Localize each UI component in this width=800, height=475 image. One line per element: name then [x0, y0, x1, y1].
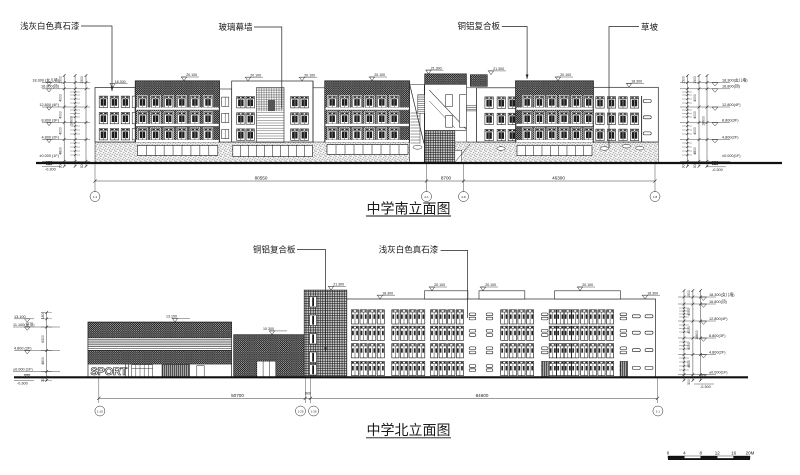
svg-text:4000: 4000: [687, 342, 691, 350]
svg-text:1-10: 1-10: [97, 410, 103, 414]
svg-text:8.800(3F): 8.800(3F): [709, 334, 726, 338]
svg-text:浅灰白色真石漆: 浅灰白色真石漆: [20, 21, 80, 31]
svg-text:18600: 18600: [695, 330, 699, 340]
svg-text:12: 12: [715, 451, 721, 456]
svg-text:草坡: 草坡: [641, 22, 659, 32]
svg-text:18.300: 18.300: [115, 80, 126, 84]
svg-text:4800: 4800: [687, 360, 691, 368]
svg-text:18.300: 18.300: [382, 291, 393, 295]
svg-text:玻璃幕墙: 玻璃幕墙: [219, 22, 254, 32]
svg-text:300: 300: [693, 162, 697, 168]
svg-text:1500: 1500: [682, 76, 686, 84]
svg-text:4.800(2F): 4.800(2F): [722, 135, 739, 139]
svg-text:4000: 4000: [693, 111, 697, 119]
svg-text:1500: 1500: [59, 76, 63, 84]
svg-text:13.100: 13.100: [14, 315, 26, 319]
svg-text:-0.300: -0.300: [45, 168, 56, 172]
svg-text:1500: 1500: [80, 76, 84, 84]
svg-text:6300: 6300: [41, 335, 45, 343]
svg-text:18.300(女儿墙): 18.300(女儿墙): [709, 292, 735, 297]
svg-text:12.800(4F): 12.800(4F): [709, 317, 728, 321]
svg-text:300: 300: [687, 379, 691, 385]
svg-text:21.300: 21.300: [431, 66, 442, 70]
svg-text:16.800(顶): 16.800(顶): [41, 84, 60, 89]
svg-text:1-26: 1-26: [311, 410, 317, 414]
svg-text:-0.300: -0.300: [712, 168, 723, 172]
svg-text:300: 300: [41, 376, 45, 382]
svg-text:浅灰白色真石漆: 浅灰白色真石漆: [379, 245, 439, 255]
svg-text:2-8: 2-8: [461, 195, 466, 199]
svg-text:4.800 (2F): 4.800 (2F): [14, 347, 32, 351]
svg-text:4000: 4000: [693, 94, 697, 102]
svg-text:1-25: 1-25: [297, 410, 303, 414]
svg-text:1800: 1800: [41, 312, 45, 320]
svg-text:21.300: 21.300: [333, 283, 344, 287]
svg-text:4000: 4000: [687, 326, 691, 334]
svg-text:±0.000(1F): ±0.000(1F): [722, 154, 741, 158]
svg-text:800: 800: [305, 392, 311, 396]
svg-text:8.800 (3F): 8.800 (3F): [41, 118, 59, 122]
svg-text:-0.300: -0.300: [17, 381, 28, 385]
svg-text:20.100: 20.100: [582, 283, 593, 287]
svg-text:8700: 8700: [441, 176, 452, 181]
svg-text:20.100: 20.100: [304, 73, 315, 77]
svg-text:中学北立面图: 中学北立面图: [367, 422, 451, 438]
svg-text:300: 300: [682, 162, 686, 168]
svg-text:铜铝复合板: 铜铝复合板: [253, 245, 296, 255]
svg-text:18.300: 18.300: [631, 80, 642, 84]
svg-text:1500: 1500: [693, 76, 697, 84]
svg-text:20.100: 20.100: [560, 73, 571, 77]
svg-text:18.300(女儿墙): 18.300(女儿墙): [722, 77, 748, 82]
svg-text:1500: 1500: [687, 290, 691, 298]
svg-text:4000: 4000: [687, 308, 691, 316]
svg-text:20.100: 20.100: [485, 283, 496, 287]
svg-text:18600: 18600: [70, 116, 74, 126]
svg-text:±0.000 (1F): ±0.000 (1F): [39, 154, 59, 158]
svg-text:16.800(顶): 16.800(顶): [722, 84, 741, 89]
svg-text:±0.000(1F): ±0.000(1F): [709, 370, 728, 374]
svg-text:300: 300: [59, 162, 63, 168]
svg-text:18600: 18600: [702, 116, 706, 126]
svg-text:4000: 4000: [59, 94, 63, 102]
svg-text:4800: 4800: [59, 147, 63, 155]
svg-text:8.800(3F): 8.800(3F): [722, 118, 739, 122]
svg-text:16: 16: [731, 451, 737, 456]
svg-text:铜铝复合板: 铜铝复合板: [458, 21, 501, 31]
svg-text:20.100: 20.100: [250, 73, 261, 77]
svg-text:20.100: 20.100: [186, 73, 197, 77]
svg-text:80550: 80550: [255, 176, 268, 181]
svg-text:20.100: 20.100: [374, 73, 385, 77]
svg-text:2-1: 2-1: [424, 195, 429, 199]
svg-text:1-1: 1-1: [93, 195, 98, 199]
svg-text:4000: 4000: [693, 127, 697, 135]
svg-text:4000: 4000: [59, 111, 63, 119]
svg-text:300: 300: [80, 162, 84, 168]
svg-text:1-8: 1-8: [653, 195, 658, 199]
svg-text:4.800 (2F): 4.800 (2F): [41, 135, 59, 139]
svg-text:13.100: 13.100: [166, 315, 177, 319]
svg-text:12.800(4F): 12.800(4F): [722, 103, 741, 107]
svg-text:-0.300: -0.300: [700, 385, 711, 389]
svg-text:4.800(2F): 4.800(2F): [709, 350, 726, 354]
svg-text:中学南立面图: 中学南立面图: [367, 201, 451, 217]
svg-text:±0.000 (1F): ±0.000 (1F): [13, 368, 33, 372]
svg-text:4800: 4800: [693, 147, 697, 155]
svg-text:46300: 46300: [552, 176, 565, 181]
svg-text:11.100(屋顶): 11.100(屋顶): [13, 322, 35, 327]
svg-text:20.100: 20.100: [434, 283, 445, 287]
svg-text:12.800 (4F): 12.800 (4F): [39, 103, 59, 107]
svg-text:16.800(顶): 16.800(顶): [709, 299, 728, 304]
svg-text:1-1: 1-1: [656, 410, 661, 414]
svg-text:50700: 50700: [231, 393, 244, 398]
svg-text:20M: 20M: [746, 451, 755, 456]
svg-text:10.300: 10.300: [263, 327, 274, 331]
svg-text:21.300: 21.300: [493, 67, 504, 71]
svg-text:84600: 84600: [476, 393, 489, 398]
svg-text:18.300: 18.300: [647, 291, 658, 295]
svg-text:18.300 (女儿墙): 18.300 (女儿墙): [32, 77, 59, 82]
svg-text:4800: 4800: [41, 357, 45, 365]
svg-text:4000: 4000: [59, 127, 63, 135]
